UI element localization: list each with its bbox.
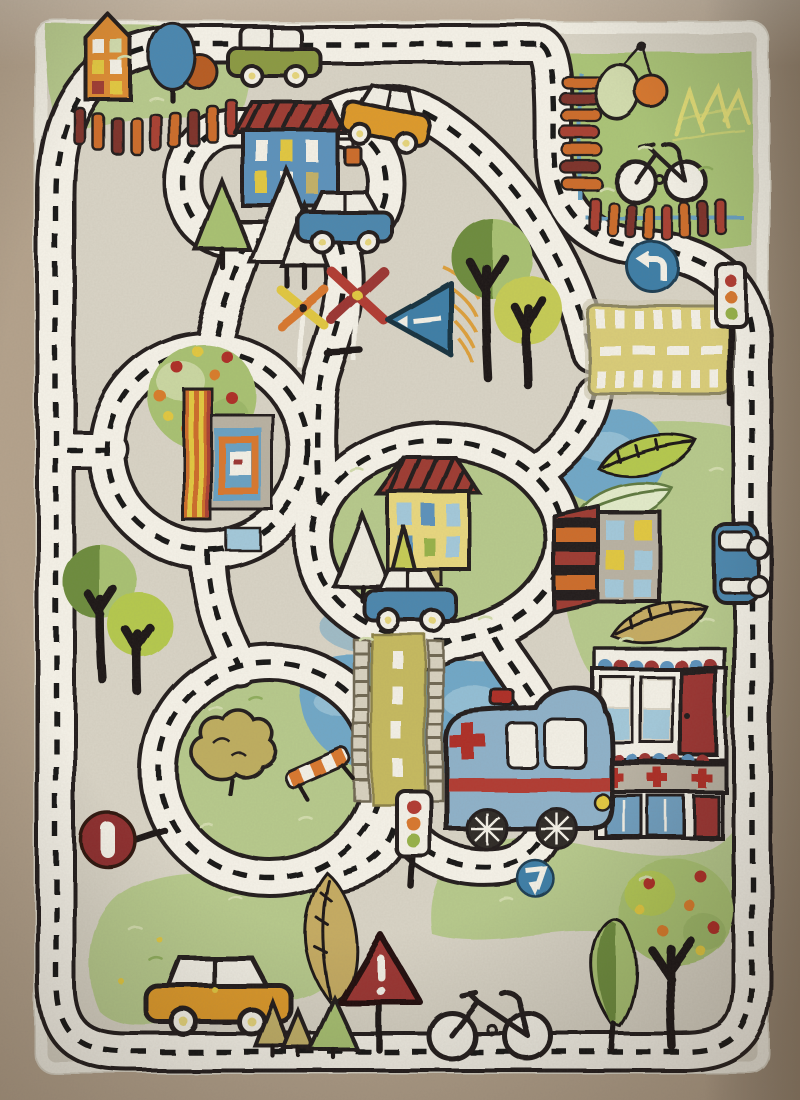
- rug-illustration: Top-down photograph of a children's city…: [0, 0, 800, 1100]
- vignette: [0, 0, 800, 1100]
- rug-photo: Top-down photograph of a children's city…: [0, 0, 800, 1100]
